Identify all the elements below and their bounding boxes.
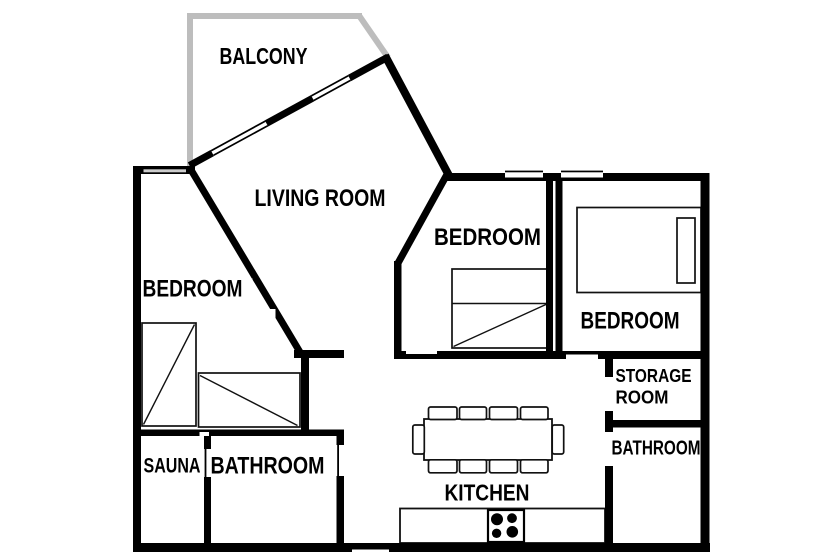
svg-text:BATHROOM: BATHROOM: [211, 453, 325, 480]
svg-text:ROOM: ROOM: [616, 388, 669, 408]
svg-text:BEDROOM: BEDROOM: [581, 308, 680, 335]
svg-text:BEDROOM: BEDROOM: [434, 224, 541, 251]
svg-text:KITCHEN: KITCHEN: [445, 480, 530, 506]
svg-text:BATHROOM: BATHROOM: [612, 438, 701, 460]
svg-text:BALCONY: BALCONY: [220, 43, 308, 69]
svg-text:SAUNA: SAUNA: [144, 454, 201, 478]
svg-text:STORAGE: STORAGE: [616, 366, 692, 386]
svg-text:BEDROOM: BEDROOM: [143, 276, 243, 303]
svg-text:LIVING ROOM: LIVING ROOM: [255, 185, 386, 212]
